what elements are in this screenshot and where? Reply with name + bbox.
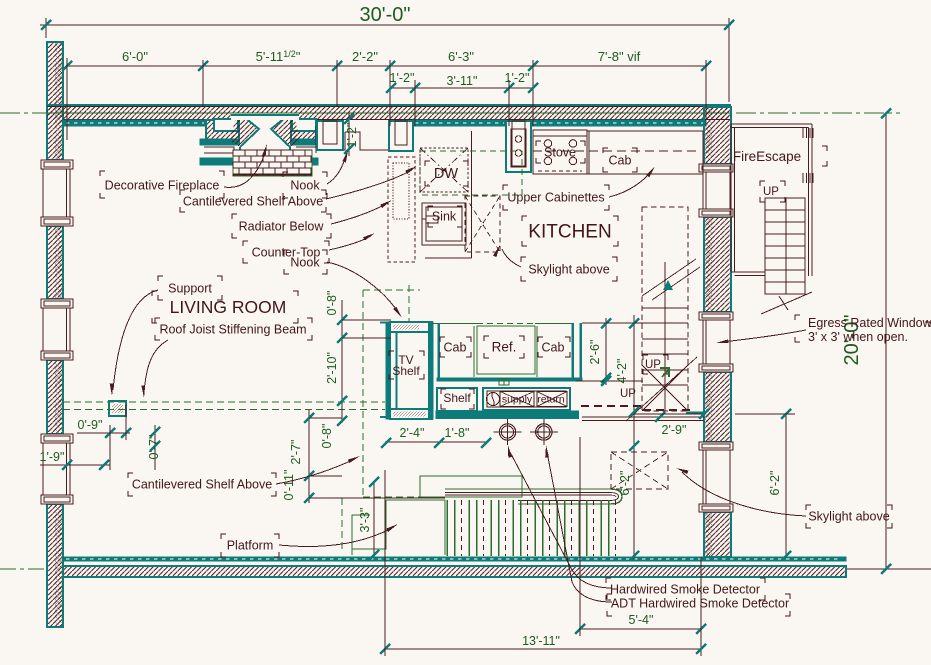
svg-text:Roof Joist Stiffening Beam: Roof Joist Stiffening Beam [159, 322, 306, 336]
svg-text:Nook: Nook [290, 178, 320, 192]
svg-text:2'-2": 2'-2" [352, 49, 378, 64]
svg-text:13'-11": 13'-11" [522, 634, 560, 648]
svg-text:3' x 3' when open.: 3' x 3' when open. [808, 330, 908, 344]
svg-text:Ref.: Ref. [492, 340, 517, 355]
svg-text:2'-7": 2'-7" [289, 440, 303, 465]
svg-text:6'-3": 6'-3" [448, 49, 474, 64]
svg-text:Shelf: Shelf [443, 391, 471, 405]
svg-text:Cab: Cab [542, 340, 565, 354]
svg-text:Shelf: Shelf [392, 364, 420, 378]
svg-text:6'-2": 6'-2" [618, 471, 632, 496]
svg-text:1'-9": 1'-9" [40, 450, 65, 464]
svg-text:30'-0": 30'-0" [360, 4, 411, 26]
svg-text:0'-8": 0'-8" [325, 291, 339, 316]
svg-text:0'-8": 0'-8" [320, 424, 334, 449]
svg-text:Cantilevered Shelf Above: Cantilevered Shelf Above [132, 477, 272, 491]
svg-text:FireEscape: FireEscape [733, 149, 801, 164]
svg-text:Platform: Platform [227, 538, 274, 552]
svg-text:0'-7": 0'-7" [147, 435, 161, 460]
svg-text:LIVING ROOM: LIVING ROOM [170, 297, 287, 317]
svg-text:Skylight above: Skylight above [528, 262, 609, 276]
svg-text:2'-4": 2'-4" [400, 426, 425, 440]
svg-text:Egress Rated Window: Egress Rated Window [808, 316, 931, 330]
svg-text:6'-2": 6'-2" [768, 471, 782, 496]
svg-text:2'-10": 2'-10" [325, 352, 339, 384]
svg-text:Stove: Stove [544, 145, 576, 159]
svg-text:2'-6": 2'-6" [588, 340, 602, 365]
svg-text:Skylight above: Skylight above [808, 509, 889, 523]
svg-text:4'-2": 4'-2" [615, 359, 629, 384]
svg-text:3'-3": 3'-3" [358, 508, 372, 533]
svg-text:Support: Support [168, 281, 212, 295]
svg-text:Cantilevered Shelf Above: Cantilevered Shelf Above [183, 194, 323, 208]
svg-text:1'-2": 1'-2" [390, 71, 415, 85]
svg-text:6'-0": 6'-0" [122, 49, 148, 64]
svg-text:Radiator Below: Radiator Below [239, 219, 325, 233]
svg-text:Cab: Cab [609, 153, 632, 167]
svg-text:UP: UP [763, 186, 779, 198]
svg-text:0'-9": 0'-9" [78, 418, 103, 432]
svg-text:Decorative Fireplace: Decorative Fireplace [105, 178, 220, 192]
svg-text:ADT Hardwired Smoke Detector: ADT Hardwired Smoke Detector [611, 596, 789, 610]
svg-text:Nook: Nook [290, 255, 320, 269]
svg-text:2'-9": 2'-9" [662, 423, 687, 437]
svg-text:Cab: Cab [444, 340, 467, 354]
svg-text:1'-2": 1'-2" [505, 71, 530, 85]
svg-text:Upper Cabinettes: Upper Cabinettes [507, 190, 604, 204]
svg-text:0'-11": 0'-11" [282, 470, 296, 501]
svg-text:UP: UP [645, 359, 661, 371]
svg-text:Sink: Sink [432, 209, 457, 223]
svg-text:1'-8": 1'-8" [445, 426, 470, 440]
svg-text:KITCHEN: KITCHEN [528, 222, 611, 243]
svg-text:return: return [537, 394, 565, 406]
svg-text:5'-4": 5'-4" [629, 613, 654, 627]
svg-text:7'-8" vif: 7'-8" vif [598, 49, 641, 64]
svg-text:3'-11": 3'-11" [447, 74, 478, 88]
svg-text:supply: supply [502, 394, 533, 406]
svg-text:DW: DW [434, 166, 458, 182]
svg-text:Hardwired Smoke Detector: Hardwired Smoke Detector [610, 582, 760, 596]
svg-text:1'-2": 1'-2" [345, 123, 359, 148]
